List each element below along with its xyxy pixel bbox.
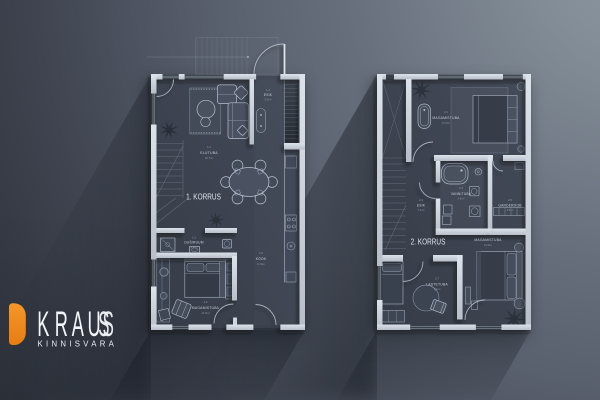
svg-text:MAGAMISTUBA: MAGAMISTUBA xyxy=(474,238,502,242)
svg-text:18.7m²: 18.7m² xyxy=(205,156,213,160)
svg-text:2.1: 2.1 xyxy=(444,110,448,114)
svg-text:GARDEROOB: GARDEROOB xyxy=(498,204,522,208)
svg-text:1.3: 1.3 xyxy=(204,300,208,304)
svg-text:MAGAMISTUBA: MAGAMISTUBA xyxy=(432,116,460,120)
svg-text:K: K xyxy=(37,304,49,343)
svg-text:2.6: 2.6 xyxy=(486,232,490,236)
svg-text:7.4m²: 7.4m² xyxy=(418,208,425,212)
svg-text:1.4: 1.4 xyxy=(266,88,270,92)
svg-text:1.5: 1.5 xyxy=(259,251,263,255)
svg-text:11.9m²: 11.9m² xyxy=(257,262,265,266)
svg-text:14.0m²: 14.0m² xyxy=(201,311,209,315)
svg-text:2.6m²: 2.6m² xyxy=(507,208,514,212)
svg-text:11.6m²: 11.6m² xyxy=(484,243,492,247)
svg-text:KÖÖK: KÖÖK xyxy=(256,257,267,261)
svg-text:2.7: 2.7 xyxy=(435,277,439,281)
svg-text:MAGAMISTUBA: MAGAMISTUBA xyxy=(192,306,220,310)
svg-text:2.4m²: 2.4m² xyxy=(191,245,198,249)
svg-text:4.6m²: 4.6m² xyxy=(458,197,465,201)
svg-text:R: R xyxy=(55,304,68,343)
svg-text:2.4: 2.4 xyxy=(419,198,423,202)
svg-text:VANNITUBA: VANNITUBA xyxy=(451,192,472,196)
svg-text:A: A xyxy=(72,304,84,343)
svg-text:7.0m²: 7.0m² xyxy=(434,287,441,291)
svg-text:11.5m²: 11.5m² xyxy=(442,121,450,125)
svg-text:1.2: 1.2 xyxy=(192,235,196,239)
svg-text:ESIK: ESIK xyxy=(264,93,273,97)
svg-text:LASTETUBA: LASTETUBA xyxy=(426,282,448,286)
svg-text:5.0m²: 5.0m² xyxy=(265,98,272,102)
svg-text:2.3: 2.3 xyxy=(459,186,463,190)
svg-text:1.1: 1.1 xyxy=(207,145,211,149)
svg-text:ESIK: ESIK xyxy=(417,204,426,208)
svg-text:2. KORRUS: 2. KORRUS xyxy=(411,237,446,247)
svg-text:ELUTUBA: ELUTUBA xyxy=(200,151,218,155)
svg-text:KINNISVARA: KINNISVARA xyxy=(38,339,118,348)
svg-text:2.5: 2.5 xyxy=(508,198,512,202)
svg-text:S: S xyxy=(103,304,114,344)
svg-text:DUŠIRUUM: DUŠIRUUM xyxy=(184,239,203,244)
svg-text:1. KORRUS: 1. KORRUS xyxy=(186,192,221,202)
